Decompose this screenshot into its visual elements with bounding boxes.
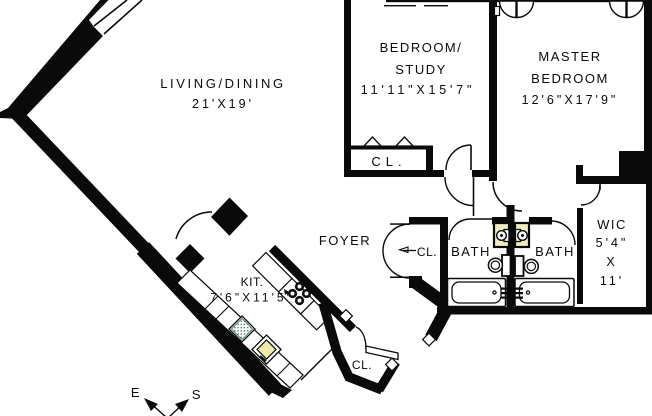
svg-text:MASTER: MASTER [538,49,601,64]
svg-text:BEDROOM/: BEDROOM/ [380,40,463,55]
svg-text:5'4": 5'4" [596,236,629,250]
svg-text:21'X19': 21'X19' [192,97,254,111]
svg-text:11'11"X15'7": 11'11"X15'7" [361,83,475,97]
svg-text:BATH: BATH [535,244,575,259]
svg-text:7'6"X11'5": 7'6"X11'5" [210,291,294,305]
svg-text:11': 11' [600,274,624,288]
svg-text:KIT.: KIT. [241,275,264,289]
svg-text:S: S [192,387,202,402]
svg-text:CL.: CL. [352,358,372,372]
svg-text:X: X [606,255,617,269]
svg-text:CL.: CL. [371,154,406,169]
svg-text:E: E [131,385,141,400]
svg-text:STUDY: STUDY [395,62,447,77]
svg-text:CL.: CL. [417,245,437,259]
svg-text:12'6"X17'9": 12'6"X17'9" [522,93,619,107]
svg-text:LIVING/DINING: LIVING/DINING [160,76,286,91]
svg-text:BEDROOM: BEDROOM [531,71,609,86]
svg-text:BATH: BATH [451,244,491,259]
svg-text:WIC: WIC [597,217,627,232]
svg-text:FOYER: FOYER [319,233,371,248]
